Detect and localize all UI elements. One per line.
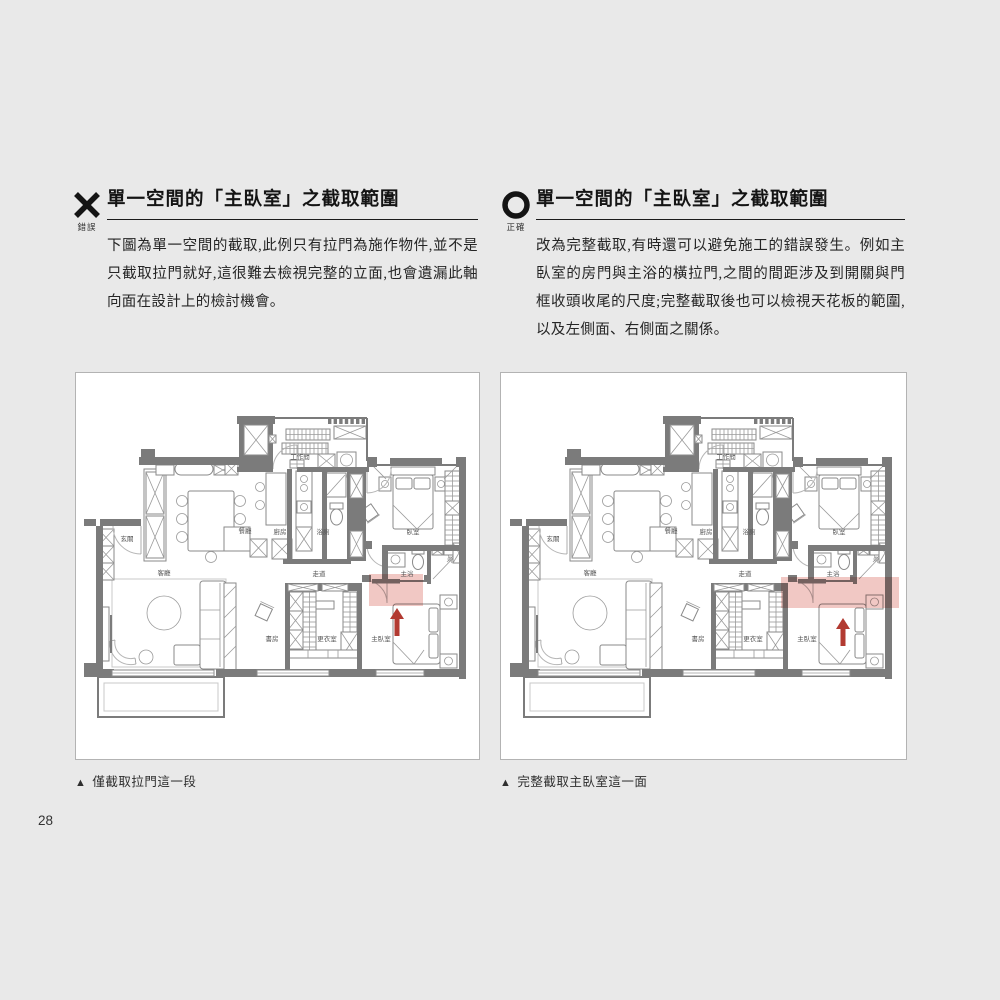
plan-layers [510, 416, 892, 717]
floorplan-correct: 玄關客廳餐廳廚房浴廁臥室工作間走道主浴書房更衣室主臥室 [501, 373, 906, 759]
room-label: 浴廁 [317, 527, 331, 536]
page-number: 28 [38, 813, 53, 828]
highlight-overlay [369, 574, 423, 606]
x-icon [72, 190, 102, 220]
caption-correct: ▲完整截取主臥室這一面 [500, 771, 647, 790]
caption-wrong: ▲僅截取拉門這一段 [75, 771, 196, 790]
room-label: 書房 [692, 634, 705, 643]
room-label: 廚房 [700, 527, 713, 536]
room-label: 廚房 [274, 527, 287, 536]
room-label: 客廳 [158, 568, 172, 577]
plan-layers [84, 416, 466, 717]
column-correct: 正確 單一空間的「主臥室」之截取範圍 改為完整截取,有時還可以避免施工的錯誤發生… [499, 188, 905, 344]
correct-mark-label: 正確 [499, 221, 533, 233]
header-correct: 正確 單一空間的「主臥室」之截取範圍 [499, 188, 905, 220]
triangle-marker-icon: ▲ [500, 777, 511, 789]
room-label: 主臥室 [797, 634, 817, 643]
highlight-overlay [781, 577, 899, 608]
room-label: 走道 [739, 569, 753, 578]
room-label: 主浴 [401, 569, 415, 578]
book-page: 錯誤 單一空間的「主臥室」之截取範圍 下圖為單一空間的截取,此例只有拉門為施作物… [0, 0, 1000, 1000]
room-label: 更衣室 [317, 634, 337, 643]
room-label: 餐廳 [665, 526, 679, 535]
room-label: 臥室 [833, 527, 847, 536]
body-text-wrong: 下圖為單一空間的截取,此例只有拉門為施作物件,並不是只截取拉門就好,這很難去檢視… [107, 232, 478, 316]
wrong-mark-label: 錯誤 [70, 221, 104, 233]
room-label: 客廳 [584, 568, 598, 577]
room-label: 餐廳 [239, 526, 253, 535]
floorplan-wrong: 玄關客廳餐廳廚房浴廁臥室工作間走道主浴書房更衣室主臥室 [76, 373, 479, 759]
room-label: 主浴 [827, 569, 841, 578]
correct-mark: 正確 [499, 190, 533, 233]
section-title-correct: 單一空間的「主臥室」之截取範圍 [536, 188, 905, 210]
room-label: 主臥室 [371, 634, 391, 643]
room-label: 玄關 [547, 534, 560, 543]
floorplan-panel-correct: 玄關客廳餐廳廚房浴廁臥室工作間走道主浴書房更衣室主臥室 [500, 372, 907, 760]
body-text-correct: 改為完整截取,有時還可以避免施工的錯誤發生。例如主臥室的房門與主浴的橫拉門,之間… [536, 232, 905, 344]
header-wrong: 錯誤 單一空間的「主臥室」之截取範圍 [70, 188, 478, 220]
room-label: 更衣室 [743, 634, 763, 643]
room-label: 書房 [266, 634, 279, 643]
room-label: 工作間 [716, 452, 736, 461]
room-label: 臥室 [407, 527, 421, 536]
title-underline-wrong: 單一空間的「主臥室」之截取範圍 [107, 188, 478, 220]
room-label: 走道 [313, 569, 327, 578]
title-underline-correct: 單一空間的「主臥室」之截取範圍 [536, 188, 905, 220]
room-label: 工作間 [290, 452, 310, 461]
floorplan-panel-wrong: 玄關客廳餐廳廚房浴廁臥室工作間走道主浴書房更衣室主臥室 [75, 372, 480, 760]
section-title-wrong: 單一空間的「主臥室」之截取範圍 [107, 188, 478, 210]
room-label: 玄關 [121, 534, 134, 543]
wrong-mark: 錯誤 [70, 190, 104, 233]
caption-correct-text: 完整截取主臥室這一面 [517, 775, 647, 789]
room-label: 浴廁 [743, 527, 757, 536]
caption-wrong-text: 僅截取拉門這一段 [92, 775, 196, 789]
column-wrong: 錯誤 單一空間的「主臥室」之截取範圍 下圖為單一空間的截取,此例只有拉門為施作物… [70, 188, 478, 316]
o-icon [501, 190, 531, 220]
triangle-marker-icon: ▲ [75, 777, 86, 789]
